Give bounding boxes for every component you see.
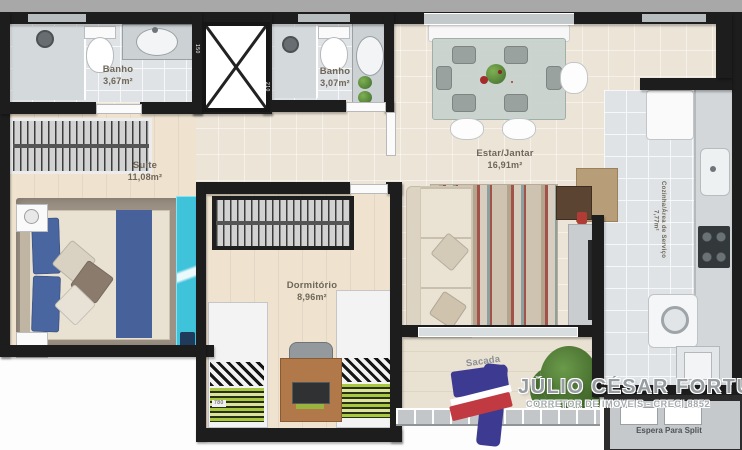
- door-entry: [386, 112, 396, 156]
- banho1-faucet-icon: [152, 27, 158, 33]
- split-unit-2: [664, 407, 702, 425]
- espera-split-label: Espera Para Split: [610, 426, 728, 435]
- sacada-sliding-glass-door: [418, 327, 578, 337]
- dining-centerpiece-flowers-icon: [480, 76, 488, 84]
- room-area-banho2: 3,07m²: [300, 78, 370, 89]
- wall-dormitorio-bottom: [196, 428, 402, 442]
- room-name-banho1: Banho: [76, 64, 160, 76]
- window-kitchen: [642, 14, 706, 22]
- wall-shaft-left: [192, 12, 202, 114]
- room-area-banho1: 3,67m²: [76, 76, 160, 87]
- dormitorio-keyboard-icon: [296, 404, 324, 409]
- dormitorio-bed-left-pillow: [210, 362, 264, 386]
- window-banho1: [28, 14, 86, 22]
- wall-top-right-inner: [716, 12, 732, 78]
- dormitorio-bed-right-blanket: [338, 384, 390, 418]
- realtor-logo-icon: [450, 360, 524, 448]
- wall-dim-150: 150: [194, 44, 199, 54]
- dormitorio-bed-right-pillow: [338, 358, 390, 382]
- kitchen-sink: [700, 148, 730, 196]
- suite-lamp: [24, 209, 39, 224]
- banho1-shower-head-icon: [36, 30, 54, 48]
- room-label-cozinha: Cozinha/Área de Serviço 7,77m²: [640, 130, 666, 310]
- door-banho2: [346, 102, 386, 112]
- kitchen-faucet-icon: [710, 166, 716, 172]
- dining-placemat-2: [504, 46, 528, 64]
- dining-placemat-1: [452, 46, 476, 64]
- room-name-cozinha: Cozinha/Área de Serviço: [659, 130, 667, 310]
- dining-chair-3: [560, 62, 588, 94]
- room-name-estar: Estar/Jantar: [455, 148, 555, 160]
- watermark-subtitle: CORRETOR DE IMÓVEIS - CRECI 8852: [526, 399, 742, 409]
- room-name-dormitorio: Dormitório: [264, 280, 360, 292]
- dormitorio-wardrobe: [212, 196, 354, 250]
- wall-dormitorio-left: [196, 182, 206, 440]
- door-dormitorio: [350, 184, 388, 194]
- dining-chair-1: [450, 118, 484, 140]
- room-area-suite: 11,08m²: [100, 172, 190, 183]
- suite-bed-runner: [116, 210, 152, 338]
- dining-placemat-5: [436, 66, 452, 90]
- wall-banho2-bottom-a: [272, 100, 346, 112]
- dining-centerpiece-plant-icon: [486, 64, 506, 84]
- watermark-name: JÚLIO CÉSAR FORTUNA: [518, 376, 742, 399]
- wall-kitchen-partition: [640, 78, 732, 90]
- wall-left: [0, 12, 10, 357]
- window-banho2: [298, 14, 350, 22]
- dining-placemat-3: [452, 94, 476, 112]
- room-area-cozinha: 7,77m²: [651, 130, 659, 310]
- floor-plan-canvas: Espera Para Split Banho 3,67m² Banho 3,0…: [0, 0, 742, 450]
- door-suite: [96, 104, 142, 114]
- wall-tv-kitchen: [592, 215, 604, 397]
- wall-dormitorio-top-a: [206, 182, 350, 194]
- wall-dim-780: 780: [212, 400, 226, 407]
- wall-suite-bottom: [0, 345, 214, 357]
- washing-machine-door-icon: [661, 306, 689, 334]
- dining-chair-2: [502, 118, 536, 140]
- wall-banho2-right: [384, 12, 394, 112]
- room-area-dormitorio: 8,96m²: [264, 292, 360, 303]
- room-name-banho2: Banho: [300, 66, 370, 78]
- room-label-banho2: Banho 3,07m²: [300, 66, 370, 89]
- wall-dormitorio-right: [390, 182, 402, 442]
- elevator-shaft: [202, 22, 270, 112]
- room-label-banho1: Banho 3,67m²: [76, 64, 160, 87]
- wall-dim-210: 210: [264, 82, 269, 92]
- wall-banho1-bottom-a: [0, 102, 96, 114]
- dormitorio-monitor-icon: [292, 382, 330, 404]
- room-label-suite: Suite 11,08m²: [100, 160, 190, 183]
- wall-banho1-bottom-b: [140, 102, 202, 114]
- room-name-suite: Suite: [100, 160, 190, 172]
- wall-top: [0, 12, 742, 24]
- elevator-x-icon: [206, 26, 266, 108]
- banho2-shower-head-icon: [282, 36, 299, 53]
- red-vase-icon: [577, 212, 587, 224]
- split-unit-1: [620, 407, 658, 425]
- cooktop: [698, 226, 730, 268]
- dining-placemat-4: [504, 94, 528, 112]
- room-label-dormitorio: Dormitório 8,96m²: [264, 280, 360, 303]
- room-area-estar: 16,91m²: [455, 160, 555, 171]
- room-label-estar: Estar/Jantar 16,91m²: [455, 148, 555, 171]
- window-dining: [424, 13, 574, 25]
